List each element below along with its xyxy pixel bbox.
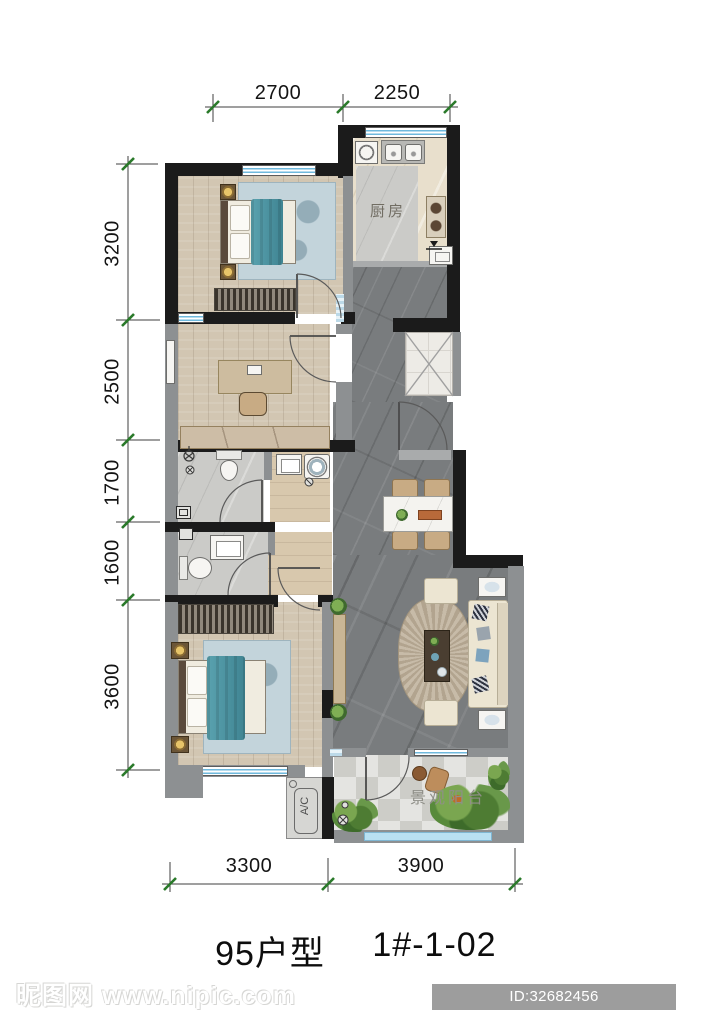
sofa-back <box>497 603 508 705</box>
study-top-window-strip <box>178 313 204 323</box>
bathroom1-partition <box>264 452 272 480</box>
shaft-top-wall <box>393 318 455 332</box>
nightstand <box>171 736 189 753</box>
plan-title-unit: 1#-1-02 <box>372 926 497 965</box>
balcony-plants <box>332 798 378 832</box>
kitchen-right-wall <box>447 125 460 332</box>
bedroom1-left-wall <box>165 163 178 324</box>
bedroom1-window <box>242 165 316 176</box>
toilet2-tank <box>179 556 188 580</box>
bathroom2-sink-basin <box>216 541 241 557</box>
balcony-stool <box>412 766 427 781</box>
bedroom1-right-wall <box>343 176 353 314</box>
dining-table <box>383 496 453 532</box>
appliance-detail <box>435 252 450 262</box>
ac-pipe-hole <box>289 780 297 788</box>
nightstand <box>220 264 236 280</box>
balcony-mosaic <box>330 749 342 756</box>
sofa-pillow <box>471 675 489 693</box>
bathroom2-right-wall <box>268 532 275 555</box>
bed-blanket <box>207 656 245 740</box>
master-wardrobe <box>178 604 274 634</box>
table-plant <box>396 509 408 521</box>
watermark: 昵图网 www.nipic.com <box>16 976 296 1012</box>
dim-left-1700: 1700 <box>102 443 125 523</box>
bed-pillow <box>230 233 250 259</box>
coffee-table-item <box>431 653 439 661</box>
sofa <box>468 600 508 708</box>
coffee-table-item <box>437 667 447 677</box>
desk-item <box>247 365 262 375</box>
floor-drain-square <box>179 528 193 540</box>
dim-top-2250: 2250 <box>357 82 437 105</box>
ac-label: A/C <box>299 782 311 830</box>
floor-drain-square <box>176 506 191 519</box>
kitchen-window <box>365 127 447 138</box>
shaft-right-wall <box>453 332 461 396</box>
potted-plant <box>330 598 347 615</box>
dim-top-2700: 2700 <box>238 82 318 105</box>
drain-detail <box>179 509 188 516</box>
dim-left-1600: 1600 <box>102 523 125 603</box>
coffee-table <box>424 630 450 682</box>
kitchen-double-sink <box>381 140 425 164</box>
bed-pillow <box>187 698 207 727</box>
sofa-pillow <box>475 648 489 662</box>
floor-plan-canvas: A/C 厨房 <box>0 0 706 1024</box>
bottom-left-corner-wall <box>165 765 203 798</box>
sink-basin-right <box>405 144 422 161</box>
plan-title-type: 95户型 <box>205 926 335 975</box>
shaft <box>405 332 453 396</box>
ac-platform: A/C <box>286 777 324 839</box>
study-left-window-panel <box>166 340 175 384</box>
study-cabinet <box>180 426 330 449</box>
bedroom1-wardrobe <box>214 288 296 311</box>
entry-threshold <box>399 450 451 460</box>
dim-left-3600: 3600 <box>102 647 125 727</box>
armchair <box>424 700 458 726</box>
kitchen-label: 厨房 <box>370 200 406 221</box>
potted-plant <box>330 704 347 721</box>
study-right-wall-bottom <box>336 382 352 440</box>
balcony-plants <box>488 760 510 790</box>
study-desk <box>218 360 292 394</box>
nightstand <box>171 642 189 659</box>
laundry-sink <box>276 454 302 475</box>
sofa-pillow <box>476 626 491 641</box>
study-right-wall-top <box>336 324 352 334</box>
bed-blanket <box>251 199 283 265</box>
sink-basin-left <box>385 144 402 161</box>
bed-headboard <box>221 201 228 263</box>
bedroom1-bed <box>220 200 296 264</box>
entry-right-wall <box>453 450 466 557</box>
side-table <box>478 710 506 730</box>
dining-chair <box>424 531 450 550</box>
toilet1-tank <box>216 450 242 460</box>
balcony-label: 景观阳台 <box>410 784 486 808</box>
washing-machine <box>304 454 330 479</box>
master-bed <box>178 660 266 734</box>
dim-bottom-3900: 3900 <box>381 855 461 878</box>
study-chair <box>239 392 267 416</box>
bed-pillow <box>230 205 250 231</box>
dim-left-3200: 3200 <box>102 204 125 284</box>
armchair <box>424 578 458 604</box>
kitchen-hob-unit <box>355 141 378 164</box>
mosaic-strip <box>336 294 344 322</box>
balcony-glass-rail <box>364 832 492 841</box>
dim-bottom-3300: 3300 <box>209 855 289 878</box>
side-table <box>478 577 506 597</box>
nightstand <box>220 184 236 200</box>
bed-pillow <box>187 666 207 695</box>
dim-left-2500: 2500 <box>102 342 125 422</box>
bed-headboard <box>179 661 186 733</box>
kitchen-stove <box>426 196 446 238</box>
toilet2-bowl <box>188 557 212 579</box>
bathroom-left-wall <box>165 440 178 602</box>
hall-console-table <box>333 614 346 704</box>
id-badge: ID:32682456 NO:20251220104210853102 <box>432 984 676 1010</box>
balcony-window <box>414 749 468 756</box>
kitchen-appliance <box>429 246 453 265</box>
table-tray <box>418 510 442 520</box>
bathroom2-sink <box>210 535 244 560</box>
coffee-table-plant <box>430 637 439 646</box>
master-window <box>200 766 288 776</box>
laundry-sink-basin <box>281 459 300 473</box>
sofa-pillow <box>472 604 490 622</box>
corridor-floor <box>268 532 332 595</box>
dining-chair <box>392 531 418 550</box>
right-outer-wall <box>508 566 524 843</box>
